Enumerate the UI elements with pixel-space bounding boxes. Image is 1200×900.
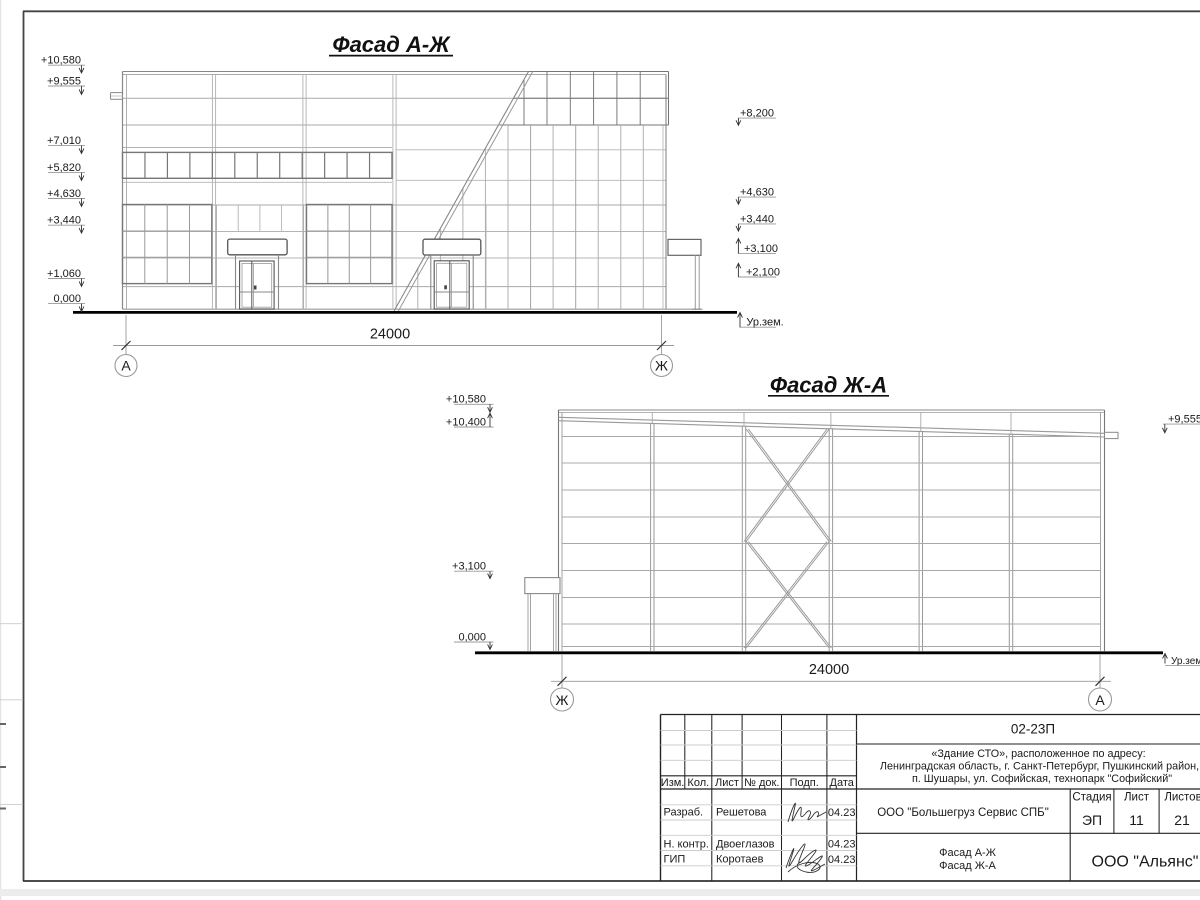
svg-text:Н. контр.: Н. контр.	[664, 839, 709, 851]
svg-text:Коротаев: Коротаев	[716, 854, 764, 866]
svg-text:04.23: 04.23	[828, 839, 856, 851]
svg-text:Дата: Дата	[830, 777, 855, 789]
svg-text:11: 11	[1129, 812, 1144, 828]
svg-text:Фасад Ж-А: Фасад Ж-А	[770, 373, 887, 398]
svg-text:«Здание СТО», расположенное по: «Здание СТО», расположенное по адресу:	[931, 748, 1145, 760]
svg-text:Разраб.: Разраб.	[664, 807, 704, 819]
svg-text:24000: 24000	[809, 662, 849, 678]
svg-text:Кол.: Кол.	[687, 777, 709, 789]
svg-text:Лист: Лист	[715, 777, 739, 789]
svg-text:№ док.: № док.	[744, 777, 779, 789]
svg-text:Листов: Листов	[1164, 792, 1200, 804]
svg-text:04.23: 04.23	[828, 807, 856, 819]
svg-text:Ж: Ж	[556, 692, 569, 708]
svg-text:ООО "Большегруз Сервис СПБ": ООО "Большегруз Сервис СПБ"	[877, 807, 1049, 819]
svg-text:Ж: Ж	[655, 358, 668, 374]
svg-text:ООО "Альянс": ООО "Альянс"	[1092, 853, 1199, 870]
svg-text:Решетова: Решетова	[716, 807, 767, 819]
svg-text:Двоеглазов: Двоеглазов	[716, 839, 775, 851]
svg-text:А: А	[121, 358, 131, 374]
svg-text:Стадия: Стадия	[1072, 792, 1111, 804]
svg-text:Фасад А-Ж: Фасад А-Ж	[939, 847, 996, 859]
svg-text:Лист: Лист	[1124, 792, 1150, 804]
svg-text:Изм.: Изм.	[661, 777, 685, 789]
svg-text:Фасад Ж-А: Фасад Ж-А	[939, 860, 996, 872]
svg-text:п. Шушары, ул. Софийская, техн: п. Шушары, ул. Софийская, технопарк "Соф…	[912, 773, 1172, 785]
svg-text:А: А	[1095, 692, 1105, 708]
svg-text:ГИП: ГИП	[664, 854, 686, 866]
svg-text:Подп.: Подп.	[790, 777, 819, 789]
svg-text:ЭП: ЭП	[1082, 812, 1102, 828]
svg-text:Фасад А-Ж: Фасад А-Ж	[332, 32, 451, 57]
svg-text:Ленинградская область, г. Санк: Ленинградская область, г. Санкт-Петербур…	[880, 761, 1199, 773]
svg-text:21: 21	[1174, 812, 1190, 828]
svg-text:02-23П: 02-23П	[1011, 722, 1055, 737]
svg-text:04.23: 04.23	[828, 854, 856, 866]
svg-text:24000: 24000	[370, 327, 410, 343]
